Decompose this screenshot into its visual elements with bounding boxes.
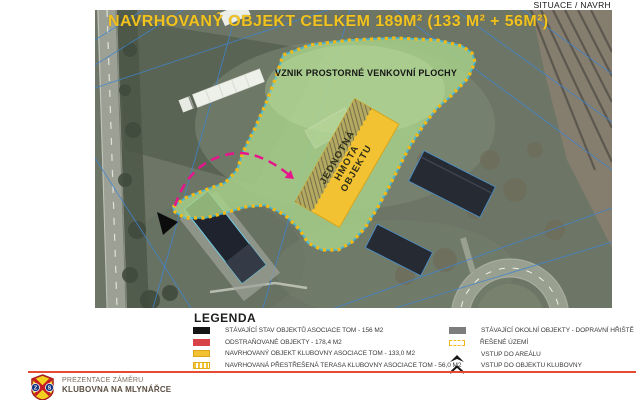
black-swatch [193,327,210,334]
red-swatch [193,339,210,346]
gray-swatch [449,327,466,334]
legend-item-label: VSTUP DO AREÁLU [481,351,541,358]
club-logo: Z S [29,374,56,400]
legend-item-label: STÁVAJÍCÍ STAV OBJEKTŮ ASOCIACE TOM - 15… [225,327,383,334]
legend-item-surrounding: STÁVAJÍCÍ OKOLNÍ OBJEKTY - DOPRAVNÍ HŘIŠ… [449,326,634,335]
presentation-slide: SITUACE / NAVRH [0,0,640,400]
legend-item-label: ŘEŠENÉ ÚZEMÍ [480,339,528,346]
svg-text:S: S [48,386,52,392]
legend-item-label: VSTUP DO OBJEKTU KLUBOVNY [481,362,582,369]
site-map: NAVRHOVANÝ OBJEKT CELKEM 189M² (133 M² +… [95,10,612,308]
legend-item-terrace: NAVRHOVANÁ PŘESTŘEŠENÁ TERASA KLUBOVNY A… [193,361,461,370]
legend-item-existing-tom: STÁVAJÍCÍ STAV OBJEKTŮ ASOCIACE TOM - 15… [193,326,383,335]
filled-arrow-icon [449,350,465,359]
legend-heading: LEGENDA [194,311,256,325]
legend-item-label: NAVRHOVANÁ PŘESTŘEŠENÁ TERASA KLUBOVNY A… [225,362,461,369]
hatched-yellow-swatch [193,362,210,369]
legend-item-territory: ŘEŠENÉ ÚZEMÍ [449,338,528,347]
chevron-icon [449,361,465,370]
outdoor-area-label: VZNIK PROSTORNÉ VENKOVNÍ PLOCHY [275,68,457,78]
legend-item-area-entrance: VSTUP DO AREÁLU [449,350,541,359]
dashed-outline-swatch [449,340,465,346]
legend-item-removed: ODSTRAŇOVANÉ OBJEKTY - 178,4 M2 [193,338,342,347]
map-title: NAVRHOVANÝ OBJEKT CELKEM 189M² (133 M² +… [108,13,608,31]
legend-item-label: ODSTRAŇOVANÉ OBJEKTY - 178,4 M2 [225,339,342,346]
legend-item-club-entrance: VSTUP DO OBJEKTU KLUBOVNY [449,361,582,370]
footer-project-name: KLUBOVNA NA MLYNÁŘCE [62,385,171,394]
legend-item-label: NAVRHOVANÝ OBJEKT KLUBOVNY ASOCIACE TOM … [225,350,415,357]
yellow-swatch [193,350,210,357]
legend-item-label: STÁVAJÍCÍ OKOLNÍ OBJEKTY - DOPRAVNÍ HŘIŠ… [481,327,634,334]
legend-item-proposed-club: NAVRHOVANÝ OBJEKT KLUBOVNY ASOCIACE TOM … [193,349,415,358]
corner-label: SITUACE / NAVRH [533,0,611,10]
legend: LEGENDA STÁVAJÍCÍ STAV OBJEKTŮ ASOCIACE … [0,308,640,370]
footer-presentation-label: PREZENTACE ZÁMĚRU [62,377,143,384]
footer-divider [28,371,636,373]
